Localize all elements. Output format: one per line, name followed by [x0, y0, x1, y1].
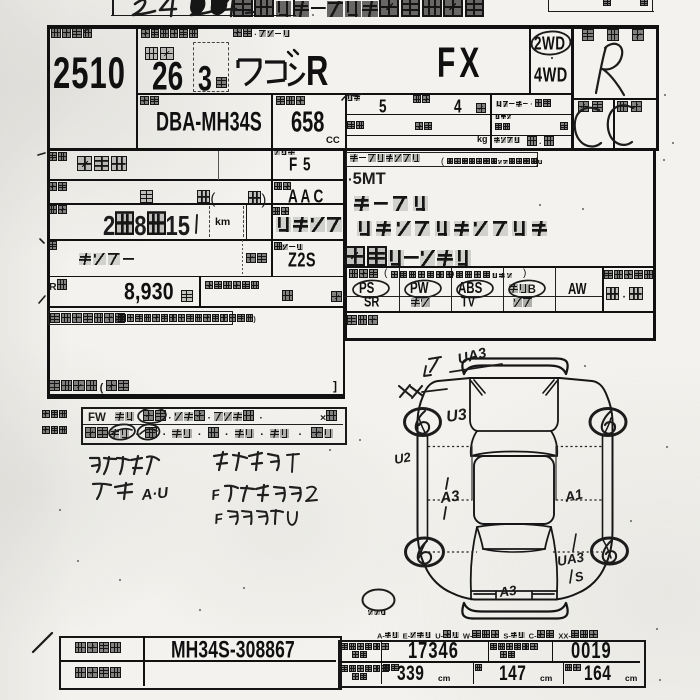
- svg-text:F: F: [210, 486, 221, 503]
- svg-text:A1: A1: [562, 486, 584, 506]
- svg-text:S: S: [573, 568, 585, 585]
- svg-text:U2: U2: [393, 449, 413, 467]
- svg-text:A·U: A·U: [140, 484, 170, 504]
- svg-text:A3: A3: [438, 487, 461, 507]
- svg-text:F: F: [213, 510, 224, 527]
- svg-text:A3: A3: [497, 583, 518, 600]
- svg-text:UA3: UA3: [556, 549, 586, 569]
- svg-text:U3: U3: [445, 406, 468, 426]
